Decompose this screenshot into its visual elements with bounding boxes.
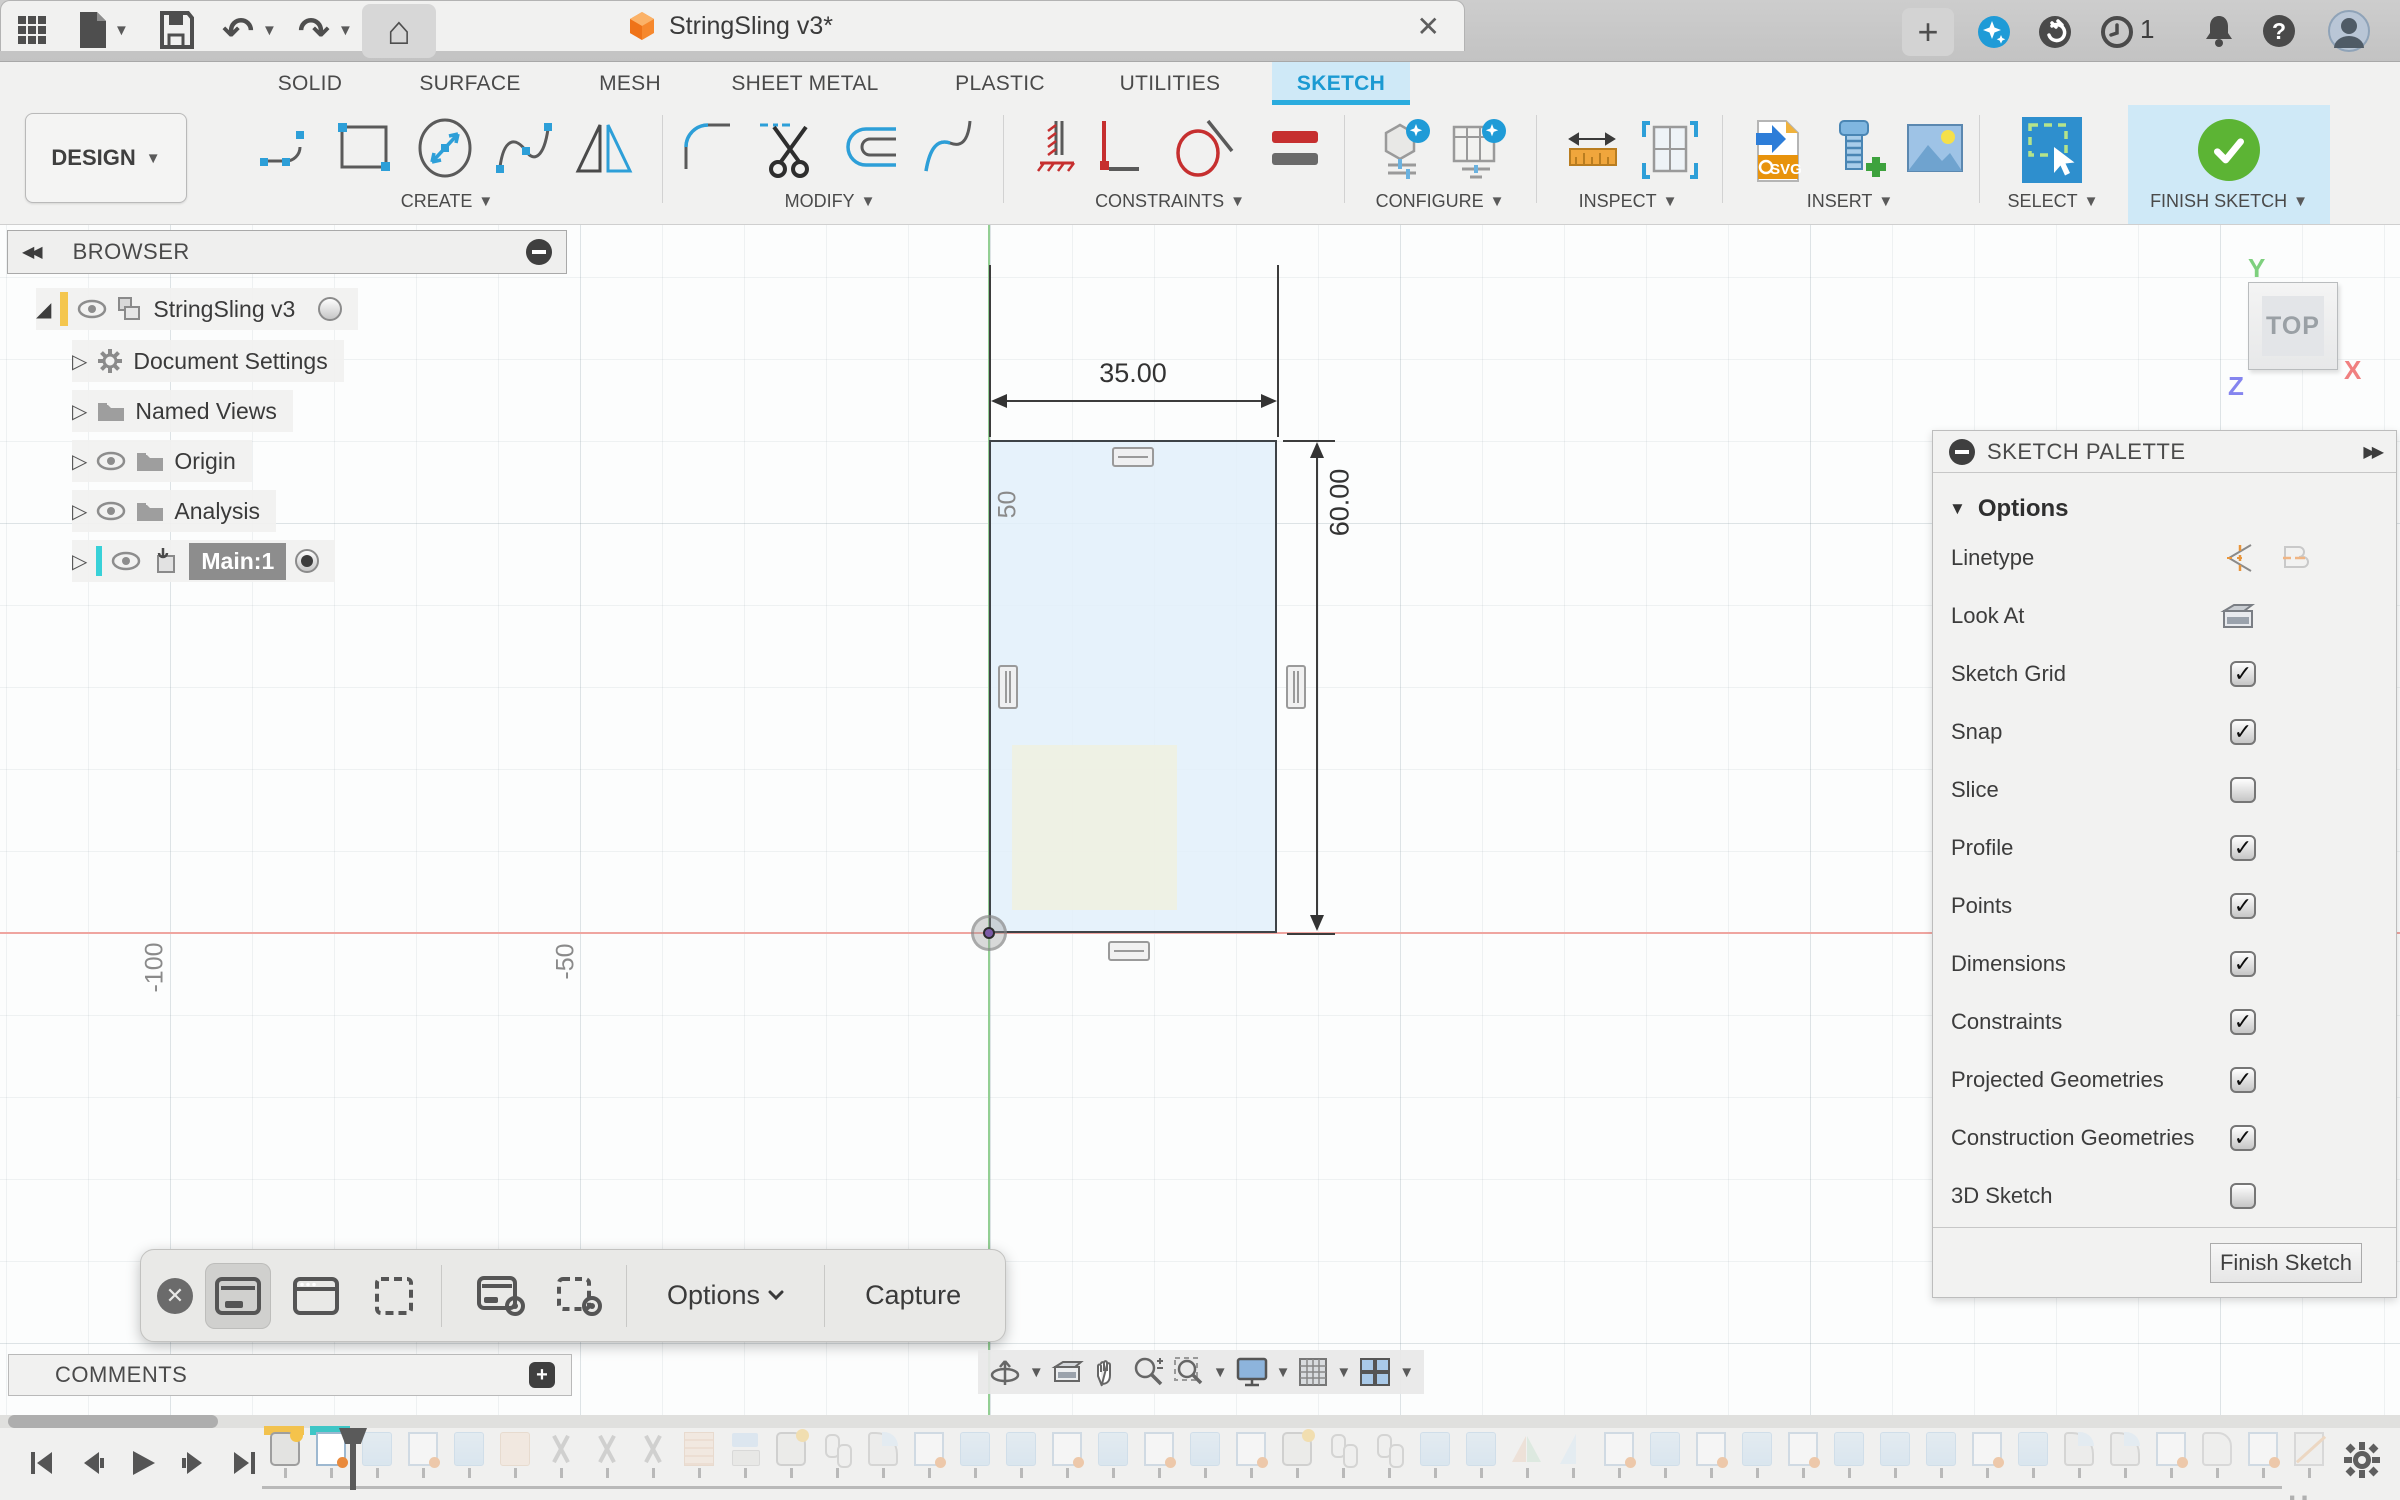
display-dropdown-caret[interactable]: ▼ — [1276, 1364, 1291, 1381]
timeline-tick — [1802, 1468, 1805, 1478]
feature-icon — [270, 1432, 300, 1466]
palette-row-linetype: Linetype — [1933, 529, 2396, 587]
browser-item-root[interactable]: ◢ StringSling v3 — [36, 288, 358, 330]
feature-icon — [1742, 1432, 1772, 1466]
palette-row-look-at: Look At — [1933, 587, 2396, 645]
component-radio[interactable] — [318, 297, 342, 321]
close-capture-icon[interactable]: ✕ — [157, 1278, 193, 1314]
step-back-button[interactable] — [78, 1449, 106, 1477]
feature-icon — [868, 1432, 898, 1466]
timeline-feature[interactable] — [1228, 1432, 1274, 1488]
viewports-dropdown-caret[interactable]: ▼ — [1399, 1364, 1414, 1381]
look-at-icon[interactable] — [2220, 601, 2256, 631]
job-count-badge: 1 — [2140, 14, 2154, 45]
group-label-constraints[interactable]: CONSTRAINTS▼ — [1095, 191, 1245, 212]
timeline-feature[interactable] — [1136, 1432, 1182, 1488]
help-icon[interactable]: ? — [2262, 14, 2296, 48]
timeline-tick — [974, 1468, 977, 1478]
timeline-feature[interactable] — [1458, 1432, 1504, 1488]
timeline-feature[interactable] — [676, 1432, 722, 1488]
grid-settings-tool[interactable] — [1297, 1356, 1329, 1388]
chevron-down-icon: ▼ — [2084, 193, 2099, 210]
gear-icon — [96, 347, 124, 375]
row-label: Projected Geometries — [1951, 1067, 2164, 1093]
timeline-tick — [2170, 1468, 2173, 1478]
eye-icon[interactable] — [111, 551, 141, 571]
timeline-feature[interactable] — [492, 1432, 538, 1488]
timeline-feature[interactable] — [1964, 1432, 2010, 1488]
modify-fillet-tool[interactable] — [678, 117, 740, 177]
feature-icon — [408, 1432, 438, 1466]
select-tool[interactable] — [2018, 113, 2086, 187]
timeline-tick — [1296, 1468, 1299, 1478]
timeline-feature[interactable] — [1688, 1432, 1734, 1488]
palette-row-snap: Snap — [1933, 703, 2396, 761]
undo-icon[interactable]: ↶ — [222, 9, 254, 54]
timeline-tick — [1940, 1468, 1943, 1478]
timeline-feature[interactable] — [2240, 1432, 2286, 1488]
create-circle-tool[interactable] — [412, 117, 478, 179]
chevron-down-icon: ▼ — [861, 193, 876, 210]
go-to-end-button[interactable] — [230, 1449, 258, 1477]
dim-extension-top — [1283, 440, 1335, 442]
plus-icon: + — [1902, 8, 1954, 56]
group-label-modify[interactable]: MODIFY▼ — [785, 191, 876, 212]
dimension-height-value[interactable]: 60.00 — [1325, 458, 1356, 548]
timeline-feature[interactable] — [860, 1432, 906, 1488]
dimensions-checkbox[interactable] — [2230, 951, 2256, 977]
tab-solid[interactable]: SOLID — [255, 62, 365, 105]
chevron-down-icon: ▼ — [146, 150, 161, 167]
constraint-tangent-tool[interactable] — [1168, 117, 1238, 179]
fit-tool[interactable] — [1172, 1355, 1206, 1389]
timeline-feature[interactable] — [1780, 1432, 1826, 1488]
timeline-feature[interactable] — [952, 1432, 998, 1488]
browser-item-analysis[interactable]: ▷ Analysis — [72, 490, 276, 532]
vertical-constraint-icon[interactable] — [998, 665, 1018, 709]
ribbon-divider — [1003, 115, 1004, 203]
feature-icon — [1604, 1432, 1634, 1466]
timeline-feature[interactable] — [1320, 1432, 1366, 1488]
insert-fastener-tool[interactable] — [1826, 117, 1890, 185]
palette-row-slice: Slice — [1933, 761, 2396, 819]
tab-surface[interactable]: SURFACE — [405, 62, 535, 105]
capture-button[interactable]: Capture — [839, 1280, 987, 1311]
browser-item-label[interactable]: Named Views — [135, 398, 276, 425]
browser-header[interactable]: ◀◀ BROWSER — [7, 230, 567, 274]
finish-sketch-button[interactable]: Finish Sketch — [2210, 1243, 2362, 1283]
data-panel-home-button[interactable]: ⌂ — [362, 4, 436, 58]
horizontal-constraint-icon[interactable] — [1112, 447, 1154, 467]
comments-label: COMMENTS — [25, 1362, 529, 1388]
file-dropdown-caret[interactable]: ▼ — [114, 22, 129, 39]
feature-icon — [2248, 1432, 2278, 1466]
create-rectangle-tool[interactable] — [334, 117, 396, 177]
grid-label-50: 50 — [994, 475, 1023, 535]
redo-icon[interactable]: ↷ — [298, 9, 330, 54]
timeline-feature[interactable] — [262, 1432, 308, 1488]
ribbon-divider — [1536, 115, 1537, 203]
look-at-tool[interactable] — [1051, 1358, 1085, 1386]
points-checkbox[interactable] — [2230, 893, 2256, 919]
timeline-features — [262, 1432, 2332, 1488]
palette-row-constraints: Constraints — [1933, 993, 2396, 1051]
dim-arrow-bottom — [1310, 915, 1324, 931]
capture-divider — [626, 1265, 627, 1327]
options-section-label: Options — [1978, 495, 2069, 523]
grid-label-m50: -50 — [552, 927, 581, 997]
dim-extension-bottom — [1287, 933, 1335, 935]
sketch-grid-checkbox[interactable] — [2230, 661, 2256, 687]
timeline-feature[interactable] — [722, 1432, 768, 1488]
feature-icon — [730, 1432, 760, 1466]
feature-icon — [1236, 1432, 1266, 1466]
ai-sparkle-icon[interactable] — [1977, 15, 2011, 49]
capture-window-button[interactable] — [283, 1263, 349, 1329]
browser-item-label-selected[interactable]: Main:1 — [189, 543, 286, 580]
ribbon-divider — [1979, 115, 1980, 203]
dim-line-height — [1316, 446, 1318, 928]
finish-sketch-ribbon-button[interactable]: FINISH SKETCH▼ — [2128, 105, 2330, 224]
feature-icon — [1190, 1432, 1220, 1466]
new-tab-button[interactable]: + — [1902, 8, 1954, 56]
timeline-feature[interactable] — [2148, 1432, 2194, 1488]
eye-icon[interactable] — [77, 299, 107, 319]
grounded-component-icon — [150, 546, 180, 576]
timeline-tick — [1388, 1468, 1391, 1478]
palette-row-profile: Profile — [1933, 819, 2396, 877]
viewcube-y-axis-label: Y — [2248, 253, 2265, 284]
timeline-scrollbar-thumb[interactable] — [8, 1415, 218, 1428]
horizontal-constraint-icon[interactable] — [1108, 941, 1150, 961]
timeline-settings-gear-icon[interactable] — [2342, 1440, 2382, 1480]
chevron-down-icon: ▼ — [1230, 193, 1245, 210]
dim-line-width — [995, 400, 1273, 402]
capture-divider — [824, 1265, 825, 1327]
group-label-inspect[interactable]: INSPECT▼ — [1579, 191, 1678, 212]
timeline-feature[interactable] — [630, 1432, 676, 1488]
component-radio-selected[interactable] — [295, 549, 319, 573]
chevron-down-icon: ▼ — [1663, 193, 1678, 210]
active-edit-bar — [60, 292, 68, 326]
constraint-equal-tool[interactable] — [1268, 127, 1322, 171]
notifications-bell-icon[interactable] — [2202, 13, 2236, 49]
constraints-checkbox[interactable] — [2230, 1009, 2256, 1035]
timeline-feature[interactable] — [1090, 1432, 1136, 1488]
feature-icon — [1466, 1432, 1496, 1466]
timeline-feature[interactable] — [446, 1432, 492, 1488]
save-icon[interactable] — [160, 11, 194, 49]
timeline-feature[interactable] — [1366, 1432, 1412, 1488]
record-screen-icon — [477, 1276, 525, 1316]
expanded-triangle-icon: ▼ — [1949, 499, 1966, 519]
timeline-feature[interactable] — [2194, 1432, 2240, 1488]
comments-bar[interactable]: COMMENTS + — [8, 1354, 572, 1396]
row-label: Constraints — [1951, 1009, 2062, 1035]
file-icon[interactable] — [78, 10, 108, 50]
collapsed-triangle-icon[interactable]: ▷ — [72, 499, 87, 524]
close-tab-icon[interactable]: ✕ — [1417, 10, 1440, 43]
pan-tool[interactable] — [1092, 1356, 1124, 1388]
group-label-insert[interactable]: INSERT▼ — [1807, 191, 1894, 212]
feature-icon — [1328, 1432, 1358, 1466]
timeline-tick — [928, 1468, 931, 1478]
display-settings-tool[interactable] — [1235, 1356, 1269, 1388]
feature-icon — [500, 1432, 530, 1466]
create-spline-tool[interactable] — [494, 117, 558, 179]
timeline-feature[interactable] — [1872, 1432, 1918, 1488]
palette-options-section[interactable]: ▼ Options — [1933, 473, 2396, 529]
row-label: 3D Sketch — [1951, 1183, 2053, 1209]
dimension-width-value[interactable]: 35.00 — [989, 358, 1277, 389]
timeline-tick — [2216, 1468, 2219, 1478]
construction-geometries-checkbox[interactable] — [2230, 1125, 2256, 1151]
feature-icon — [960, 1432, 990, 1466]
insert-svg-tool[interactable]: SVG — [1748, 117, 1806, 185]
palette-row-sketch-grid: Sketch Grid — [1933, 645, 2396, 703]
group-label-configure[interactable]: CONFIGURE▼ — [1376, 191, 1505, 212]
create-line-tool[interactable] — [258, 117, 320, 177]
timeline-feature[interactable] — [1734, 1432, 1780, 1488]
capture-selection-button[interactable] — [361, 1263, 427, 1329]
timeline-tick — [1618, 1468, 1621, 1478]
timeline-scrollbar-track[interactable] — [0, 1415, 2400, 1428]
row-label: Linetype — [1951, 545, 2034, 571]
timeline-feature[interactable] — [2056, 1432, 2102, 1488]
slice-checkbox[interactable] — [2230, 777, 2256, 803]
tab-sketch[interactable]: SKETCH — [1272, 62, 1410, 105]
folder-icon — [135, 449, 165, 473]
step-forward-button[interactable] — [180, 1449, 208, 1477]
active-component-bar — [96, 546, 102, 576]
timeline-feature[interactable] — [1504, 1432, 1550, 1488]
modify-trim-tool[interactable] — [756, 117, 822, 181]
job-status-icon[interactable] — [2100, 15, 2134, 49]
timeline-feature[interactable] — [1642, 1432, 1688, 1488]
inspect-section-tool[interactable] — [1640, 117, 1700, 183]
feature-icon — [454, 1432, 484, 1466]
feature-icon — [2156, 1432, 2186, 1466]
timeline-tick — [1664, 1468, 1667, 1478]
palette-title: SKETCH PALETTE — [1987, 439, 2351, 465]
timeline-tick — [1848, 1468, 1851, 1478]
timeline-feature[interactable] — [1918, 1432, 1964, 1488]
collapse-palette-icon[interactable]: ▶▶ — [2363, 442, 2380, 462]
tab-plastic[interactable]: PLASTIC — [935, 62, 1065, 105]
group-label-create[interactable]: CREATE▼ — [401, 191, 494, 212]
group-label-finish-sketch: FINISH SKETCH▼ — [2150, 191, 2308, 212]
feature-icon — [546, 1432, 576, 1466]
browser-item-origin[interactable]: ▷ Origin — [72, 440, 252, 482]
browser-item-label[interactable]: Document Settings — [133, 348, 327, 375]
configure-table-tool[interactable] — [1448, 117, 1510, 183]
timeline-feature[interactable] — [1826, 1432, 1872, 1488]
origin-point[interactable] — [983, 927, 995, 939]
timeline-tick — [698, 1468, 701, 1478]
timeline-feature[interactable] — [1412, 1432, 1458, 1488]
browser-item-label[interactable]: Origin — [174, 448, 235, 475]
tab-sheet-metal[interactable]: SHEET METAL — [725, 62, 885, 105]
zoom-tool[interactable] — [1131, 1355, 1165, 1389]
tab-mesh[interactable]: MESH — [575, 62, 685, 105]
timeline-tick — [744, 1468, 747, 1478]
expand-triangle-icon[interactable]: ◢ — [36, 297, 51, 322]
workspace-tab-row: SOLID SURFACE MESH SHEET METAL PLASTIC U… — [0, 62, 2400, 105]
timeline-feature[interactable] — [998, 1432, 1044, 1488]
eye-icon[interactable] — [96, 451, 126, 471]
palette-minimize-icon[interactable] — [1949, 439, 1975, 465]
constraint-vertical-tool[interactable] — [1090, 117, 1142, 179]
timeline-tick — [652, 1468, 655, 1478]
timeline-feature[interactable] — [2102, 1432, 2148, 1488]
timeline-tick — [1572, 1468, 1575, 1478]
timeline-feature[interactable] — [400, 1432, 446, 1488]
chevron-down-icon — [768, 1290, 784, 1301]
dim-arrow-top — [1310, 442, 1324, 458]
fit-dropdown-caret[interactable]: ▼ — [1213, 1364, 1228, 1381]
workspace-selector-button[interactable]: DESIGN ▼ — [25, 113, 187, 203]
timeline-feature[interactable] — [1550, 1432, 1596, 1488]
chevron-down-icon: ▼ — [478, 193, 493, 210]
grid-dropdown-caret[interactable]: ▼ — [1336, 1364, 1351, 1381]
timeline-tick — [514, 1468, 517, 1478]
svg-text:SVG: SVG — [1770, 161, 1802, 178]
timeline-feature[interactable] — [1182, 1432, 1228, 1488]
feature-icon — [684, 1432, 714, 1466]
timeline-feature[interactable] — [1044, 1432, 1090, 1488]
timeline-tick — [2262, 1468, 2265, 1478]
document-tab[interactable]: StringSling v3* ✕ — [0, 0, 1465, 51]
feature-icon — [1420, 1432, 1450, 1466]
viewcube[interactable]: TOP — [2248, 282, 2338, 370]
browser-item-document-settings[interactable]: ▷ Document Settings — [72, 340, 344, 382]
profile-highlight — [1012, 745, 1177, 910]
capture-options-button[interactable]: Options — [641, 1280, 810, 1311]
browser-item-named-views[interactable]: ▷ Named Views — [72, 390, 293, 432]
browser-item-main[interactable]: ▷ Main:1 — [72, 540, 335, 582]
collapsed-triangle-icon[interactable]: ▷ — [72, 449, 87, 474]
timeline-tick — [790, 1468, 793, 1478]
collapsed-triangle-icon[interactable]: ▷ — [72, 549, 87, 574]
feature-icon — [1558, 1432, 1588, 1466]
row-label: Dimensions — [1951, 951, 2066, 977]
viewports-tool[interactable] — [1358, 1356, 1392, 1388]
row-label: Sketch Grid — [1951, 661, 2066, 687]
timeline-feature[interactable] — [584, 1432, 630, 1488]
constraint-fix-tool[interactable] — [1030, 117, 1082, 179]
play-button[interactable] — [128, 1448, 158, 1478]
orbit-dropdown-caret[interactable]: ▼ — [1029, 1364, 1044, 1381]
orbit-tool[interactable] — [988, 1355, 1022, 1389]
redo-dropdown-caret[interactable]: ▼ — [338, 22, 353, 39]
projected-geometries-checkbox[interactable] — [2230, 1067, 2256, 1093]
collapse-browser-icon[interactable]: ◀◀ — [22, 242, 39, 262]
timeline-tick — [330, 1468, 333, 1478]
go-to-start-button[interactable] — [28, 1449, 56, 1477]
timeline-tick — [882, 1468, 885, 1478]
timeline-tick — [1434, 1468, 1437, 1478]
undo-dropdown-caret[interactable]: ▼ — [262, 22, 277, 39]
timeline-tick — [1342, 1468, 1345, 1478]
timeline-tick — [1250, 1468, 1253, 1478]
timeline-feature[interactable] — [768, 1432, 814, 1488]
timeline-tick — [1986, 1468, 1989, 1478]
home-icon: ⌂ — [362, 4, 436, 58]
selection-icon — [374, 1276, 414, 1316]
profile-checkbox[interactable] — [2230, 835, 2256, 861]
extensions-icon[interactable] — [2038, 15, 2072, 49]
vertical-constraint-icon[interactable] — [1286, 665, 1306, 709]
collapsed-triangle-icon[interactable]: ▷ — [72, 399, 87, 424]
feature-icon — [2202, 1432, 2232, 1466]
app-grid-icon[interactable] — [16, 14, 48, 46]
feature-icon — [1788, 1432, 1818, 1466]
timeline-tick — [1894, 1468, 1897, 1478]
timeline-feature[interactable] — [538, 1432, 584, 1488]
timeline-tick — [1526, 1468, 1529, 1478]
configure-part-tool[interactable] — [1376, 117, 1438, 183]
component-icon — [116, 295, 144, 323]
add-comment-icon[interactable]: + — [529, 1362, 555, 1388]
timeline-feature[interactable] — [1596, 1432, 1642, 1488]
grid-label-m100: -100 — [141, 928, 170, 1008]
feature-icon — [1926, 1432, 1956, 1466]
viewcube-top-face[interactable]: TOP — [2262, 296, 2324, 356]
snap-checkbox[interactable] — [2230, 719, 2256, 745]
feature-icon — [638, 1432, 668, 1466]
timeline-feature[interactable] — [906, 1432, 952, 1488]
inspect-measure-tool[interactable] — [1562, 117, 1626, 181]
feature-icon — [1512, 1432, 1542, 1466]
record-entire-screen-button[interactable] — [468, 1263, 534, 1329]
avatar[interactable] — [2328, 10, 2370, 52]
timeline-tick — [1756, 1468, 1759, 1478]
timeline-playhead[interactable] — [339, 1428, 367, 1490]
tab-utilities[interactable]: UTILITIES — [1105, 62, 1235, 105]
modify-offset-tool[interactable] — [836, 117, 902, 177]
timeline-feature[interactable] — [1274, 1432, 1320, 1488]
group-label-select[interactable]: SELECT▼ — [2008, 191, 2099, 212]
view-navigation-bar: ▼ ▼ ▼ ▼ ▼ — [978, 1350, 1424, 1394]
centerline-linetype-icon[interactable] — [2223, 541, 2257, 575]
svg-text:?: ? — [2272, 18, 2286, 44]
3d-sketch-checkbox[interactable] — [2230, 1183, 2256, 1209]
timeline-tick — [560, 1468, 563, 1478]
dim-extension-left — [989, 265, 991, 437]
construction-linetype-icon[interactable] — [2277, 541, 2311, 575]
collapsed-triangle-icon[interactable]: ▷ — [72, 349, 87, 374]
modify-curve-tool[interactable] — [916, 117, 978, 179]
sketch-palette-header[interactable]: SKETCH PALETTE ▶▶ — [1933, 431, 2396, 473]
browser-item-label[interactable]: Analysis — [174, 498, 260, 525]
feature-icon — [822, 1432, 852, 1466]
create-mirror-tool[interactable] — [574, 117, 636, 179]
insert-canvas-tool[interactable] — [1904, 117, 1966, 179]
browser-minimize-icon[interactable] — [526, 239, 552, 265]
folder-icon — [96, 399, 126, 423]
browser-item-label[interactable]: StringSling v3 — [153, 296, 295, 323]
finish-sketch-check-icon — [2198, 119, 2260, 181]
timeline-feature[interactable] — [2010, 1432, 2056, 1488]
feature-icon — [1282, 1432, 1312, 1466]
timeline-feature[interactable] — [814, 1432, 860, 1488]
capture-entire-screen-button[interactable] — [205, 1263, 271, 1329]
palette-row-3d-sketch: 3D Sketch — [1933, 1167, 2396, 1225]
eye-icon[interactable] — [96, 501, 126, 521]
record-selection-button[interactable] — [546, 1263, 612, 1329]
feature-icon — [1098, 1432, 1128, 1466]
ribbon-divider — [1722, 115, 1723, 203]
